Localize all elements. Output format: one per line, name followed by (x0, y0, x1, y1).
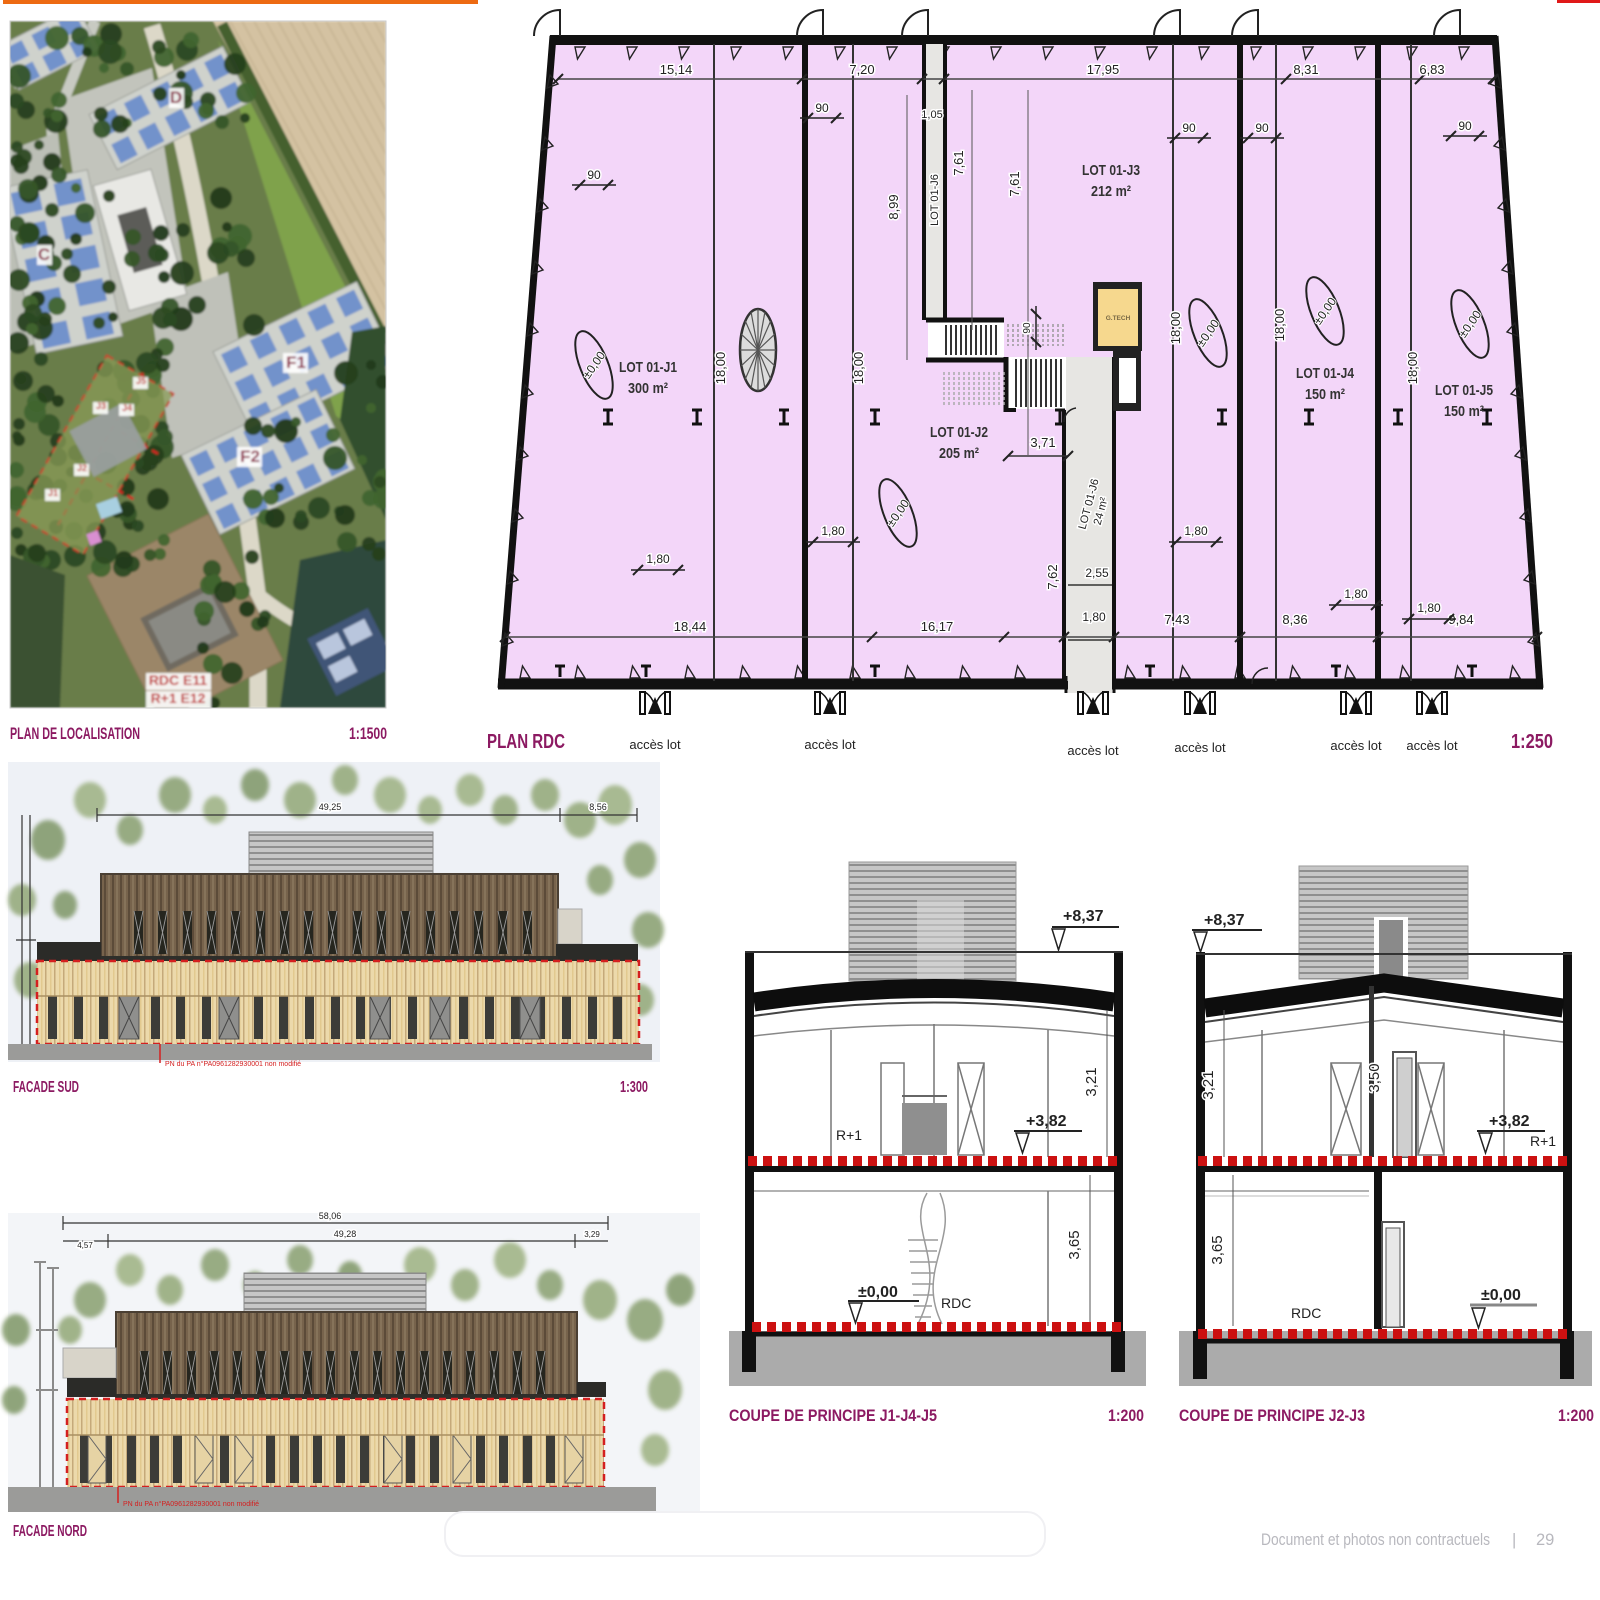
svg-text:RDC: RDC (1291, 1305, 1321, 1321)
svg-text:LOT 01-J3: LOT 01-J3 (1082, 162, 1140, 179)
svg-text:accès lot: accès lot (804, 737, 856, 752)
svg-text:Document et photos non contrac: Document et photos non contractuels (1261, 1530, 1490, 1549)
svg-text:18,00: 18,00 (1405, 352, 1420, 385)
svg-text:90: 90 (1458, 119, 1472, 133)
svg-text:LOT 01-J2: LOT 01-J2 (930, 424, 988, 441)
svg-text:F2: F2 (240, 447, 260, 466)
svg-text:LOT 01-J1: LOT 01-J1 (619, 359, 677, 376)
svg-text:18,00: 18,00 (1168, 312, 1183, 345)
svg-text:PLAN RDC: PLAN RDC (487, 731, 565, 753)
svg-text:3,21: 3,21 (1200, 1070, 1217, 1099)
svg-text:D: D (170, 88, 182, 107)
svg-text:7,62: 7,62 (1045, 564, 1060, 589)
svg-text:8,31: 8,31 (1293, 62, 1318, 77)
svg-text:15,14: 15,14 (660, 62, 693, 77)
svg-text:8,36: 8,36 (1282, 612, 1307, 627)
svg-text:1,80: 1,80 (821, 524, 845, 538)
svg-text:4,57: 4,57 (77, 1241, 93, 1250)
svg-text:PN du PA n°PA0961282930001 non: PN du PA n°PA0961282930001 non modifié (123, 1500, 259, 1508)
svg-text:+8,37: +8,37 (1204, 912, 1245, 929)
svg-text:PLAN DE LOCALISATION: PLAN DE LOCALISATION (10, 724, 140, 743)
svg-text:G.TECH: G.TECH (1106, 315, 1131, 322)
svg-text:90: 90 (1182, 121, 1196, 135)
svg-text:+3,82: +3,82 (1026, 1113, 1067, 1130)
svg-text:1:250: 1:250 (1511, 731, 1553, 753)
svg-text:1:300: 1:300 (620, 1079, 648, 1096)
svg-text:FACADE NORD: FACADE NORD (13, 1523, 87, 1540)
svg-text:205 m²: 205 m² (939, 445, 979, 462)
svg-text:LOT 01-J5: LOT 01-J5 (1435, 382, 1493, 399)
svg-text:7,61: 7,61 (951, 150, 966, 175)
svg-text:accès lot: accès lot (1330, 738, 1382, 753)
svg-text:3,65: 3,65 (1066, 1230, 1083, 1259)
svg-text:7,43: 7,43 (1164, 612, 1189, 627)
svg-text:58,06: 58,06 (319, 1211, 342, 1221)
svg-text:3,50: 3,50 (1366, 1063, 1383, 1092)
svg-text:J3: J3 (96, 401, 106, 411)
svg-text:18,00: 18,00 (1272, 309, 1287, 342)
svg-text:PN du PA n°PA0961282930001 non: PN du PA n°PA0961282930001 non modifié (165, 1060, 301, 1068)
svg-text:accès lot: accès lot (1067, 743, 1119, 758)
svg-text:300 m²: 300 m² (628, 380, 668, 397)
svg-text:17,95: 17,95 (1087, 62, 1120, 77)
svg-text:R+1 E12: R+1 E12 (151, 690, 206, 706)
svg-text:90: 90 (587, 168, 601, 182)
svg-text:8,56: 8,56 (589, 802, 607, 812)
svg-text:18,00: 18,00 (851, 352, 866, 385)
svg-text:±0,00: ±0,00 (858, 1284, 898, 1301)
svg-text:RDC E11: RDC E11 (149, 672, 208, 688)
svg-text:accès lot: accès lot (629, 737, 681, 752)
svg-text:J4: J4 (122, 403, 132, 413)
svg-text:8,99: 8,99 (886, 194, 901, 219)
svg-text:3,71: 3,71 (1030, 435, 1055, 450)
svg-text:F1: F1 (286, 353, 306, 372)
svg-text:RDC: RDC (941, 1295, 971, 1311)
svg-text:90: 90 (1022, 322, 1033, 334)
svg-text:49,28: 49,28 (334, 1229, 357, 1239)
svg-text:90: 90 (1255, 121, 1269, 135)
svg-text:6,83: 6,83 (1419, 62, 1444, 77)
svg-text:150 m²: 150 m² (1305, 386, 1345, 403)
svg-text:R+1: R+1 (836, 1127, 862, 1143)
svg-text:1,80: 1,80 (1344, 587, 1368, 601)
svg-text:1:200: 1:200 (1558, 1406, 1594, 1425)
svg-text:1:1500: 1:1500 (349, 724, 387, 743)
svg-text:1,80: 1,80 (646, 552, 670, 566)
svg-text:7,20: 7,20 (849, 62, 874, 77)
svg-text:18,00: 18,00 (713, 352, 728, 385)
svg-text:J1: J1 (48, 488, 58, 498)
svg-text:29: 29 (1536, 1531, 1554, 1549)
svg-text:1,80: 1,80 (1082, 610, 1106, 624)
svg-text:1,80: 1,80 (1184, 524, 1208, 538)
svg-text:accès lot: accès lot (1406, 738, 1458, 753)
svg-text:49,25: 49,25 (319, 802, 342, 812)
svg-text:±0,00: ±0,00 (1481, 1287, 1521, 1304)
svg-text:212 m²: 212 m² (1091, 183, 1131, 200)
svg-text:1,05: 1,05 (921, 109, 942, 121)
svg-text:3,65: 3,65 (1209, 1235, 1226, 1264)
svg-text:2,55: 2,55 (1085, 566, 1109, 580)
svg-text:J5: J5 (136, 376, 146, 386)
svg-text:LOT 01-J6: LOT 01-J6 (929, 174, 941, 226)
svg-text:|: | (1512, 1531, 1516, 1549)
svg-text:16,17: 16,17 (921, 619, 954, 634)
svg-text:COUPE DE PRINCIPE J2-J3: COUPE DE PRINCIPE J2-J3 (1179, 1406, 1365, 1425)
svg-text:R+1: R+1 (1530, 1133, 1556, 1149)
svg-text:150 m²: 150 m² (1444, 403, 1484, 420)
svg-text:+8,37: +8,37 (1063, 908, 1104, 925)
svg-text:7,61: 7,61 (1007, 171, 1022, 196)
svg-text:FACADE SUD: FACADE SUD (13, 1079, 79, 1096)
svg-text:1:200: 1:200 (1108, 1406, 1144, 1425)
svg-text:C: C (38, 245, 50, 264)
svg-text:J2: J2 (77, 463, 87, 473)
svg-text:90: 90 (815, 101, 829, 115)
svg-text:18,44: 18,44 (674, 619, 707, 634)
svg-text:1,80: 1,80 (1417, 601, 1441, 615)
svg-text:+3,82: +3,82 (1489, 1113, 1530, 1130)
svg-text:3,21: 3,21 (1083, 1067, 1100, 1096)
svg-text:3,29: 3,29 (584, 1230, 600, 1239)
svg-text:COUPE DE PRINCIPE J1-J4-J5: COUPE DE PRINCIPE J1-J4-J5 (729, 1406, 937, 1425)
svg-text:accès lot: accès lot (1174, 740, 1226, 755)
svg-text:LOT 01-J4: LOT 01-J4 (1296, 365, 1355, 382)
